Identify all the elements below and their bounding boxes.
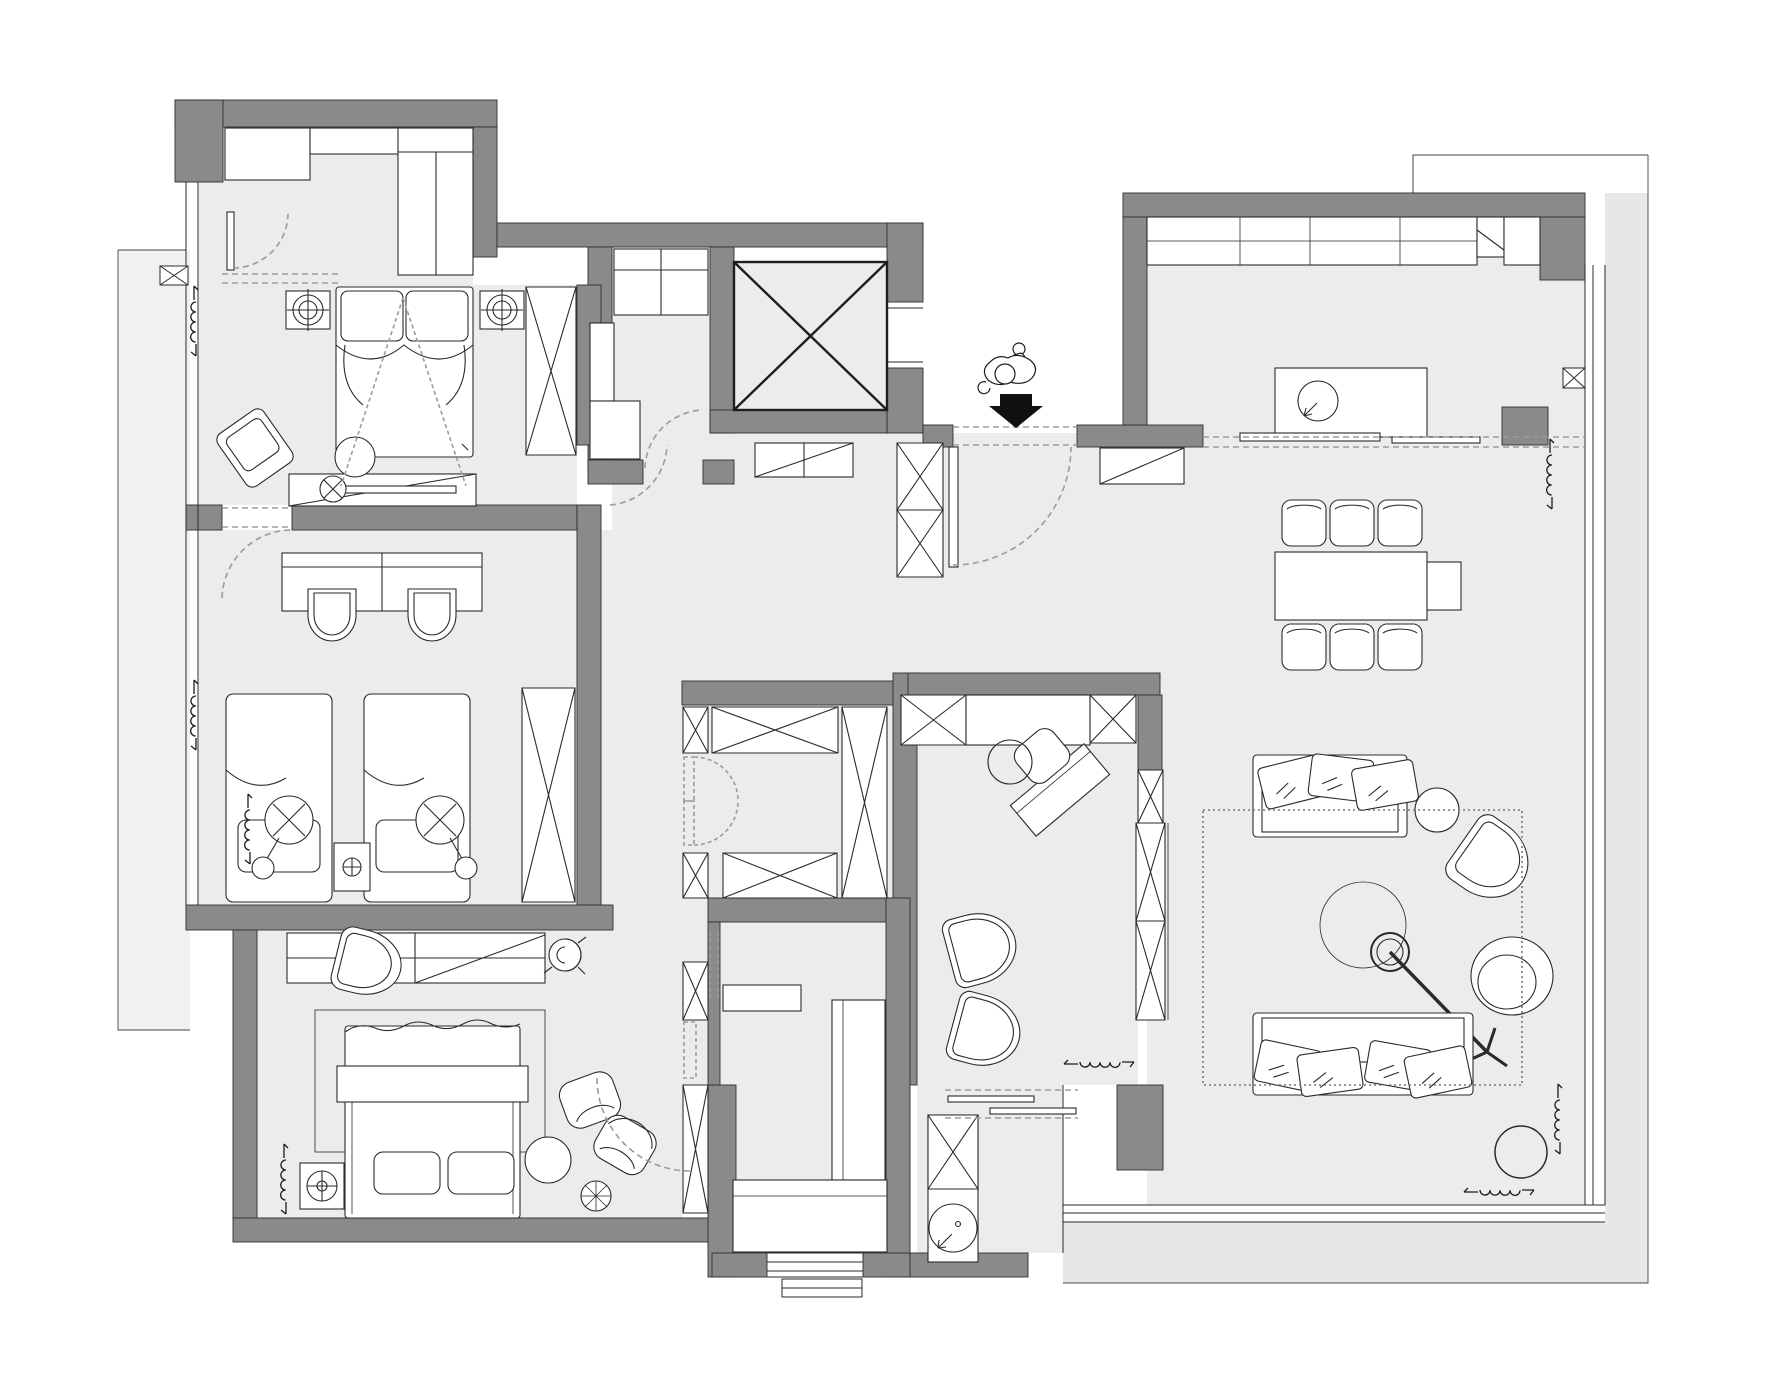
floor-lamp-icon bbox=[320, 476, 346, 502]
desk-chair bbox=[408, 589, 456, 641]
dining-chair bbox=[1282, 624, 1326, 670]
window-mullion-x bbox=[1563, 368, 1585, 388]
floor-plan-page bbox=[0, 0, 1778, 1380]
master-bed bbox=[337, 1020, 528, 1218]
dining-chair bbox=[1378, 624, 1422, 670]
pouf bbox=[1471, 937, 1553, 1015]
balcony-bottom-floor bbox=[1063, 1222, 1648, 1283]
towel-bar bbox=[948, 1096, 1034, 1102]
refrigerator-fold bbox=[1477, 217, 1504, 257]
dining-chair bbox=[1330, 500, 1374, 546]
single-bed bbox=[364, 694, 470, 902]
cabinet-x bbox=[901, 695, 966, 745]
entry-door-leaf bbox=[949, 447, 958, 567]
island-toe-kick bbox=[1392, 437, 1480, 443]
bench bbox=[733, 1180, 887, 1252]
foyer-cabinet bbox=[755, 443, 853, 477]
corner-unit bbox=[1504, 217, 1540, 265]
wall-cabinet-x bbox=[1138, 770, 1163, 823]
round-table bbox=[525, 1137, 571, 1183]
dining-table bbox=[1275, 552, 1427, 620]
sofa-bottom bbox=[1253, 1013, 1473, 1099]
cabinet-plain bbox=[966, 695, 1090, 745]
long-dresser bbox=[287, 933, 545, 983]
round-stool bbox=[335, 437, 375, 477]
desk-chair bbox=[308, 589, 356, 641]
pillow bbox=[448, 1152, 514, 1194]
dining-chair bbox=[1330, 624, 1374, 670]
shoe-cabinet-xx bbox=[897, 443, 943, 577]
spoke-wheel-stool bbox=[581, 1181, 611, 1211]
tv-wall-cabinet-xx bbox=[1136, 823, 1168, 1020]
floor-plan-drawing bbox=[0, 0, 1778, 1380]
balcony-right-floor bbox=[1605, 193, 1648, 1283]
round-washbasin bbox=[929, 1204, 977, 1252]
floor-foyer-hall bbox=[612, 433, 1147, 681]
tv-cabinet bbox=[289, 474, 476, 506]
pillow bbox=[341, 291, 403, 341]
wall-shelf bbox=[723, 985, 801, 1011]
wardrobe-x bbox=[522, 688, 575, 902]
sofa-top bbox=[1253, 753, 1419, 837]
table-extension bbox=[1427, 562, 1461, 610]
towel-bar bbox=[990, 1108, 1076, 1114]
wardrobe-x bbox=[526, 287, 576, 455]
cabinet-x bbox=[1090, 695, 1136, 743]
pillow bbox=[374, 1152, 440, 1194]
dining-chair bbox=[1378, 500, 1422, 546]
dressing-door-leaf bbox=[227, 212, 234, 270]
double-bed bbox=[336, 287, 473, 457]
counter-run bbox=[1147, 217, 1477, 265]
center-nightstand bbox=[334, 843, 370, 891]
lamp-box bbox=[300, 1163, 344, 1209]
island-with-sink bbox=[1275, 368, 1427, 437]
round-side-table bbox=[1415, 788, 1459, 832]
dining-chair bbox=[1282, 500, 1326, 546]
balcony-left-floor bbox=[118, 250, 190, 1030]
shower-glass-panel bbox=[832, 1000, 885, 1180]
window-mullion-x bbox=[160, 266, 188, 285]
